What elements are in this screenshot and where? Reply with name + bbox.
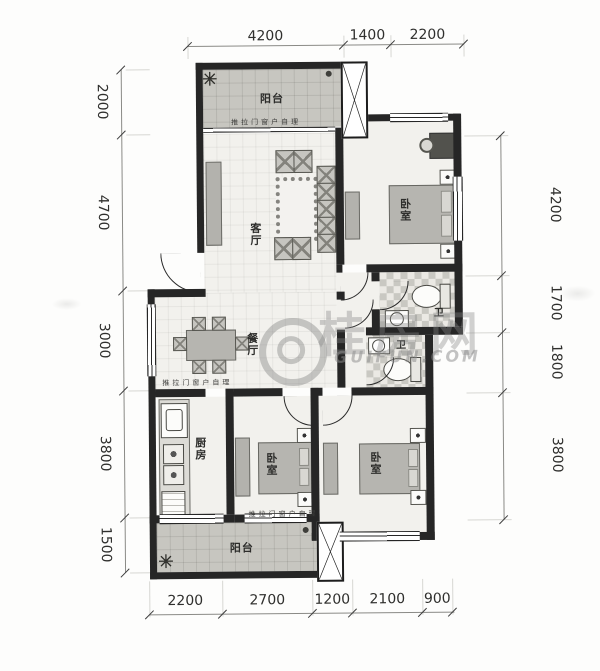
extension-line bbox=[126, 134, 150, 135]
dim-label-bottom: 2700 bbox=[249, 592, 285, 608]
sliding-door-note: 推拉门窗户自理 bbox=[231, 117, 301, 128]
pillow-icon bbox=[299, 468, 309, 486]
dining-table-icon bbox=[186, 330, 236, 361]
wall bbox=[337, 330, 346, 388]
extension-line bbox=[468, 519, 512, 520]
floorplan-canvas: 阳台 客厅 卧室 餐厅 卫 卫 厨房 卧室 卧室 阳台 推拉门窗户自理 推拉门窗… bbox=[0, 0, 600, 671]
pillow-icon bbox=[408, 469, 418, 487]
rug-icon bbox=[276, 177, 319, 241]
pillow-icon bbox=[408, 449, 418, 467]
sofa-seat-icon bbox=[292, 237, 311, 260]
sliding-door-note: 推拉门窗户自理 bbox=[162, 378, 232, 389]
ceiling-light-icon bbox=[326, 71, 332, 77]
extension-line bbox=[466, 332, 510, 333]
wall bbox=[425, 335, 435, 540]
wall bbox=[336, 265, 342, 273]
chair-icon bbox=[192, 360, 206, 374]
wall bbox=[148, 289, 206, 298]
window bbox=[453, 177, 464, 241]
toilet-icon bbox=[412, 285, 442, 308]
extension-line bbox=[343, 36, 344, 58]
wall bbox=[335, 128, 344, 265]
room-label-bathroom-upper: 卫 bbox=[434, 308, 445, 321]
window bbox=[340, 531, 420, 542]
dimension-line-left bbox=[121, 70, 126, 573]
dim-label-left: 3800 bbox=[97, 434, 113, 474]
chair-icon bbox=[192, 317, 206, 331]
window bbox=[390, 113, 448, 123]
wall bbox=[150, 571, 342, 580]
wall bbox=[233, 388, 282, 396]
extension-line bbox=[463, 35, 464, 57]
lamp-icon bbox=[419, 138, 434, 153]
room-label-master-bedroom: 卧室 bbox=[398, 198, 412, 222]
extension-line bbox=[467, 392, 511, 393]
window bbox=[147, 304, 157, 376]
extension-line bbox=[464, 135, 508, 136]
room-label-balcony-top: 阳台 bbox=[260, 92, 284, 106]
wall bbox=[366, 327, 463, 336]
plant-icon bbox=[203, 71, 217, 85]
dim-label-left: 1500 bbox=[98, 525, 114, 565]
dim-label-right: 3800 bbox=[549, 435, 565, 475]
dim-label-top: 2200 bbox=[409, 27, 445, 43]
wall bbox=[196, 62, 346, 70]
bathroom-sink-basin bbox=[390, 312, 404, 326]
scan-smudge bbox=[52, 298, 82, 310]
dim-label-right: 1700 bbox=[548, 283, 564, 323]
stove-burner-icon bbox=[163, 444, 184, 464]
chair-icon bbox=[173, 337, 187, 351]
wardrobe-icon bbox=[323, 443, 338, 495]
plant-icon bbox=[159, 553, 173, 567]
room-label-bathroom-lower: 卫 bbox=[396, 340, 407, 353]
nightstand-icon bbox=[297, 492, 312, 507]
dimension-line-bottom bbox=[149, 612, 454, 616]
toilet-tank-icon bbox=[440, 284, 451, 309]
room-label-dining: 餐厅 bbox=[245, 332, 259, 356]
wall bbox=[371, 272, 379, 281]
dimension-line-top bbox=[187, 44, 463, 47]
extension-line bbox=[126, 69, 150, 70]
dim-label-bottom: 2100 bbox=[369, 591, 405, 607]
nightstand-icon bbox=[410, 490, 426, 505]
wall bbox=[351, 387, 433, 396]
extension-line bbox=[465, 275, 509, 276]
sofa-seat-icon bbox=[275, 150, 294, 173]
wardrobe-icon bbox=[235, 437, 251, 496]
room-label-kitchen: 厨房 bbox=[193, 437, 207, 461]
dim-label-bottom: 2200 bbox=[167, 593, 203, 609]
wall bbox=[366, 264, 462, 273]
chair-icon bbox=[212, 360, 226, 374]
ceiling-light-icon bbox=[303, 527, 309, 533]
wall bbox=[337, 292, 345, 300]
pillow-icon bbox=[441, 191, 452, 213]
floorplan-sheet: 阳台 客厅 卧室 餐厅 卫 卫 厨房 卧室 卧室 阳台 推拉门窗户自理 推拉门窗… bbox=[0, 0, 600, 671]
bathroom-sink-basin bbox=[372, 339, 385, 352]
wall bbox=[225, 389, 234, 515]
room-label-bedroom-3: 卧室 bbox=[368, 451, 382, 475]
dim-label-top: 1400 bbox=[349, 27, 385, 43]
kitchen-sink-basin bbox=[166, 409, 183, 431]
room-label-balcony-bottom: 阳台 bbox=[230, 541, 254, 555]
dimension-line-right bbox=[500, 135, 504, 519]
extension-line bbox=[187, 37, 188, 59]
dim-label-left: 2000 bbox=[94, 82, 110, 122]
dim-label-left: 4700 bbox=[95, 193, 111, 233]
door-arc-entrance bbox=[160, 253, 200, 293]
column-icon bbox=[341, 61, 369, 138]
nightstand-icon bbox=[297, 428, 312, 443]
dim-label-bottom: 900 bbox=[424, 591, 451, 607]
dim-label-top: 4200 bbox=[247, 28, 283, 44]
sliding-door-note: 推拉门窗户自理 bbox=[249, 509, 319, 520]
nightstand-icon bbox=[410, 428, 426, 443]
pillow-icon bbox=[441, 215, 452, 237]
scan-smudge bbox=[560, 285, 596, 301]
tv-cabinet-icon bbox=[205, 162, 222, 246]
sofa-seat-icon bbox=[293, 150, 312, 173]
wardrobe-icon bbox=[345, 191, 360, 239]
sofa-seat-icon bbox=[317, 234, 336, 253]
extension-line bbox=[390, 35, 391, 57]
chair-icon bbox=[212, 317, 226, 331]
wall bbox=[155, 389, 205, 397]
sofa-seat-icon bbox=[274, 237, 293, 260]
room-label-bedroom-2: 卧室 bbox=[264, 452, 278, 476]
dim-label-right: 4200 bbox=[547, 185, 563, 225]
pillow-icon bbox=[299, 448, 309, 466]
window bbox=[160, 514, 224, 525]
dim-label-bottom: 1200 bbox=[314, 592, 350, 608]
dim-label-left: 3000 bbox=[96, 321, 112, 361]
room-label-living: 客厅 bbox=[248, 222, 262, 246]
dim-label-right: 1800 bbox=[548, 342, 564, 382]
toilet-tank-icon bbox=[410, 357, 421, 382]
stove-burner-icon bbox=[163, 465, 184, 485]
